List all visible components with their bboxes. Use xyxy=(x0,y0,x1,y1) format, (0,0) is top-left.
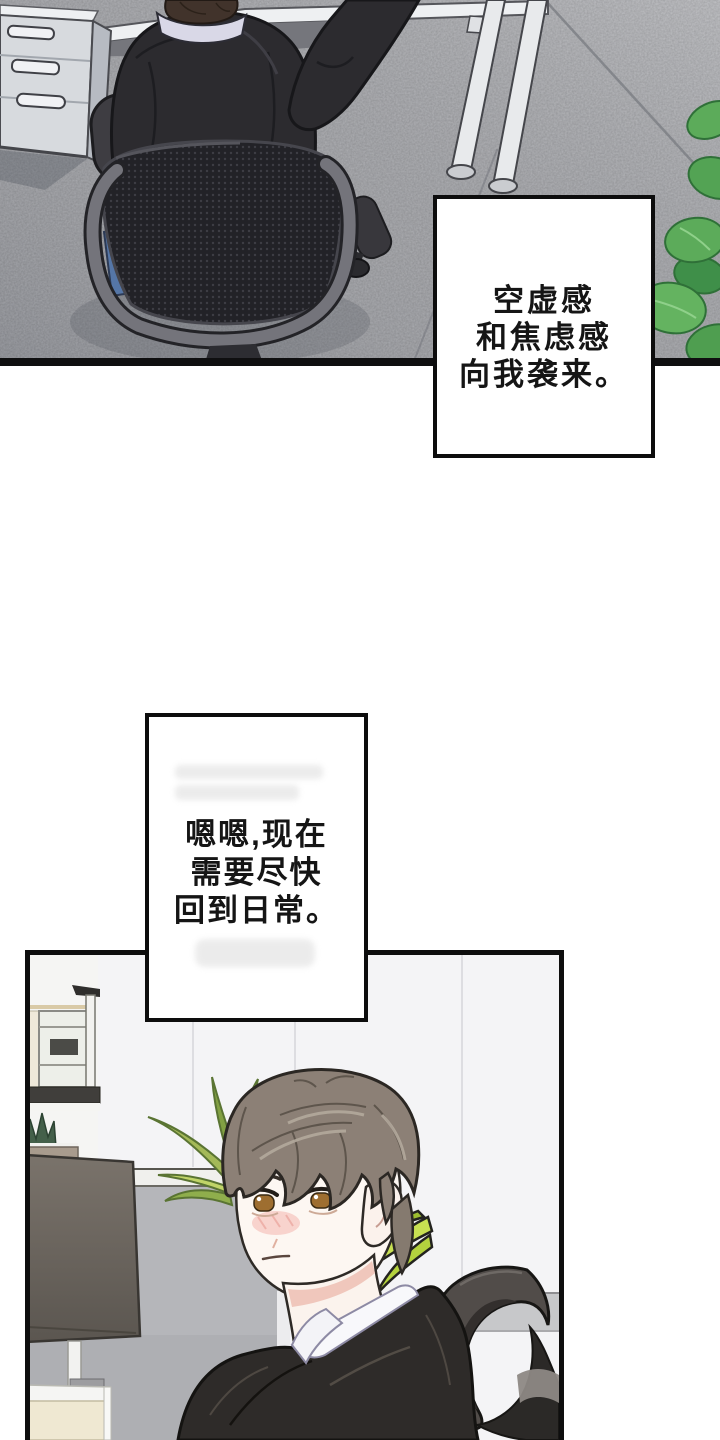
chair-mesh-back xyxy=(103,141,342,324)
caption-box-1: 空虚感 和焦虑感 向我袭来。 xyxy=(433,195,655,458)
caption-line: 和焦虑感 xyxy=(437,319,651,356)
caption-line: 嗯嗯,现在 xyxy=(149,816,364,854)
window-glass-slit xyxy=(50,1039,78,1055)
window-shelf-unit xyxy=(30,955,100,1177)
caption-2-text: 嗯嗯,现在 需要尽快 回到日常。 xyxy=(149,717,364,930)
caption-line: 向我袭来。 xyxy=(437,356,651,393)
bottom-panel-art xyxy=(30,955,559,1440)
caption-line: 空虚感 xyxy=(437,282,651,319)
caption-line: 需要尽快 xyxy=(149,854,364,892)
bottom-panel xyxy=(25,950,564,1440)
caption-line: 回到日常。 xyxy=(149,892,364,930)
caption-box-2: 嗯嗯,现在 需要尽快 回到日常。 xyxy=(145,713,368,1022)
erased-text-ghost xyxy=(195,939,315,967)
shelf-monitor-strip xyxy=(30,1087,100,1103)
caption-1-text: 空虚感 和焦虑感 向我袭来。 xyxy=(437,199,651,393)
comic-page: { "page": { "type": "comic-page", "backg… xyxy=(0,0,720,1440)
office-desk-bottom xyxy=(30,1379,111,1440)
